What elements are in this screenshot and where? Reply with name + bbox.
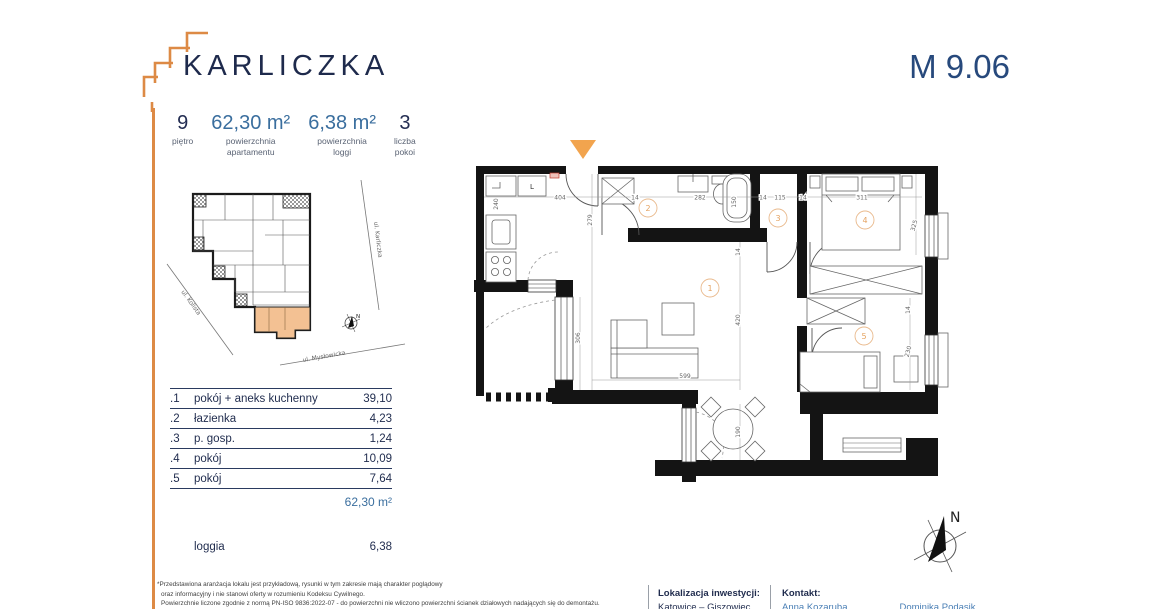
room-area: 7,64 xyxy=(370,473,392,485)
room-marker-4: 4 xyxy=(862,216,867,225)
stat-apartment-area-label2: apartamentu xyxy=(227,147,275,157)
cooktop-marker xyxy=(550,173,559,178)
street-label-karliczka: ul. Karliczka xyxy=(372,221,383,258)
apartment-stats: 9 piętro 62,30 m² powierzchnia apartamen… xyxy=(163,112,425,157)
svg-text:14: 14 xyxy=(799,195,807,202)
mini-compass-icon: N xyxy=(342,314,360,332)
room-marker-5: 5 xyxy=(861,332,866,341)
svg-text:325: 325 xyxy=(910,219,920,232)
room-area-table: .1 pokój + aneks kuchenny 39,10 .2 łazie… xyxy=(170,388,392,553)
stat-apartment-area: 62,30 m² powierzchnia apartamentu xyxy=(202,112,299,157)
highlighted-unit[interactable] xyxy=(255,307,310,338)
contact-block: Kontakt: Anna Kozaruba Dominika Podasik xyxy=(782,588,1112,609)
site-plan-map: ul. Karliczka ul. Kolista ul. Mysłowicka… xyxy=(165,180,415,380)
disclaimer-line: *Przedstawiona aranżacja lokalu jest prz… xyxy=(157,580,632,590)
street-label-kolista: ul. Kolista xyxy=(179,289,202,317)
stat-floor-label: piętro xyxy=(172,136,193,147)
bedroom5-furniture xyxy=(800,352,918,392)
svg-text:115: 115 xyxy=(774,195,786,202)
room-no: .3 xyxy=(170,433,194,445)
table-row: .1 pokój + aneks kuchenny 39,10 xyxy=(170,388,392,409)
chair xyxy=(701,441,721,461)
svg-text:14: 14 xyxy=(631,195,639,202)
loggia-label: loggia xyxy=(170,541,370,553)
room-name: pokój xyxy=(194,453,363,465)
disclaimer-line: Powierzchnie liczone zgodnie z normą PN-… xyxy=(157,599,632,609)
svg-text:190: 190 xyxy=(735,426,742,438)
balcony-glass-door xyxy=(555,297,573,380)
room-area: 39,10 xyxy=(363,393,392,405)
table-row: .4 pokój 10,09 xyxy=(170,449,392,469)
floor-plan: L xyxy=(470,140,950,492)
svg-text:14: 14 xyxy=(759,195,767,202)
room-name: p. gosp. xyxy=(194,433,370,445)
unit-number: M 9.06 xyxy=(860,48,1010,86)
table-row: .5 pokój 7,64 xyxy=(170,469,392,489)
room-no: .5 xyxy=(170,473,194,485)
loggia-furniture xyxy=(701,397,765,461)
chair xyxy=(745,441,765,461)
entrance-marker-icon xyxy=(570,140,596,159)
stat-room-count: 3 liczba pokoi xyxy=(385,112,425,157)
svg-text:14: 14 xyxy=(735,248,742,256)
loggia-area: 6,38 xyxy=(370,541,392,553)
fridge-label: L xyxy=(530,183,534,191)
svg-text:N: N xyxy=(356,314,360,320)
room-area: 10,09 xyxy=(363,453,392,465)
table-row: .3 p. gosp. 1,24 xyxy=(170,429,392,449)
room-no: .1 xyxy=(170,393,194,405)
nightstand xyxy=(810,176,820,188)
chair xyxy=(701,397,721,417)
room-area: 4,23 xyxy=(370,413,392,425)
wardrobes xyxy=(807,266,922,324)
disclaimer-line: oraz informacyjny i nie stanowi oferty w… xyxy=(157,590,632,600)
stat-loggia-area-value: 6,38 m² xyxy=(308,112,376,134)
round-table xyxy=(713,409,753,449)
single-bed xyxy=(800,352,880,392)
location-block: Lokalizacja inwestycji: Katowice – Giszo… xyxy=(658,588,760,609)
compass-icon: N xyxy=(898,500,988,590)
stat-loggia-area-label2: loggi xyxy=(333,147,351,157)
street-label-myslowicka: ul. Mysłowicka xyxy=(302,349,346,363)
stat-floor-value: 9 xyxy=(172,112,193,134)
stat-apartment-area-value: 62,30 m² xyxy=(211,112,290,134)
accent-line xyxy=(152,108,155,609)
svg-text:599: 599 xyxy=(679,373,691,380)
svg-text:279: 279 xyxy=(587,214,594,226)
svg-text:240: 240 xyxy=(493,198,500,210)
room-no: .2 xyxy=(170,413,194,425)
svg-text:311: 311 xyxy=(856,195,868,202)
loggia-row: loggia 6,38 xyxy=(170,541,392,553)
stat-apartment-area-label1: powierzchnia xyxy=(226,136,276,146)
svg-text:420: 420 xyxy=(735,314,742,326)
room-marker-2: 2 xyxy=(645,204,650,213)
total-area: 62,30 m² xyxy=(170,495,392,509)
svg-text:404: 404 xyxy=(554,195,566,202)
kitchen-fixtures: L xyxy=(486,173,559,282)
room-area: 1,24 xyxy=(370,433,392,445)
svg-text:14: 14 xyxy=(905,306,912,314)
room-no: .4 xyxy=(170,453,194,465)
stat-room-count-label2: pokoi xyxy=(395,147,415,157)
contact-label: Kontakt: xyxy=(782,588,1112,599)
room-name: pokój + aneks kuchenny xyxy=(194,393,363,405)
chair xyxy=(745,397,765,417)
contact-person-2[interactable]: Dominika Podasik xyxy=(900,602,976,609)
room-name: pokój xyxy=(194,473,370,485)
stove xyxy=(486,252,516,282)
room-marker-1: 1 xyxy=(707,284,712,293)
stat-floor: 9 piętro xyxy=(163,112,202,147)
footer-divider xyxy=(648,585,649,609)
room-name: łazienka xyxy=(194,413,370,425)
stat-loggia-area: 6,38 m² powierzchnia loggi xyxy=(299,112,385,157)
bathroom-fixtures xyxy=(602,174,751,222)
sofa-corner xyxy=(611,320,647,348)
coffee-table xyxy=(662,303,694,335)
disclaimer-text: *Przedstawiona aranżacja lokalu jest prz… xyxy=(157,580,632,609)
svg-text:306: 306 xyxy=(575,332,582,344)
flyer-page: KARLICZKA M 9.06 9 piętro 62,30 m² powie… xyxy=(0,0,1169,609)
nightstand xyxy=(902,176,912,188)
location-value: Katowice – Giszowiec xyxy=(658,602,760,609)
stat-loggia-area-label1: powierzchnia xyxy=(317,136,367,146)
brand-name: KARLICZKA xyxy=(183,50,389,83)
stat-room-count-label1: liczba xyxy=(394,136,416,146)
compass-n-label: N xyxy=(950,510,960,526)
table-row: .2 łazienka 4,23 xyxy=(170,409,392,429)
svg-text:150: 150 xyxy=(731,196,738,208)
location-label: Lokalizacja inwestycji: xyxy=(658,588,760,599)
footer-divider xyxy=(770,585,771,609)
living-room-furniture xyxy=(611,303,698,378)
stat-room-count-value: 3 xyxy=(394,112,416,134)
svg-text:282: 282 xyxy=(694,195,706,202)
room-marker-3: 3 xyxy=(775,214,780,223)
loggia-glass-door xyxy=(682,408,696,462)
desk xyxy=(894,356,918,382)
contact-person-1[interactable]: Anna Kozaruba xyxy=(782,602,848,609)
